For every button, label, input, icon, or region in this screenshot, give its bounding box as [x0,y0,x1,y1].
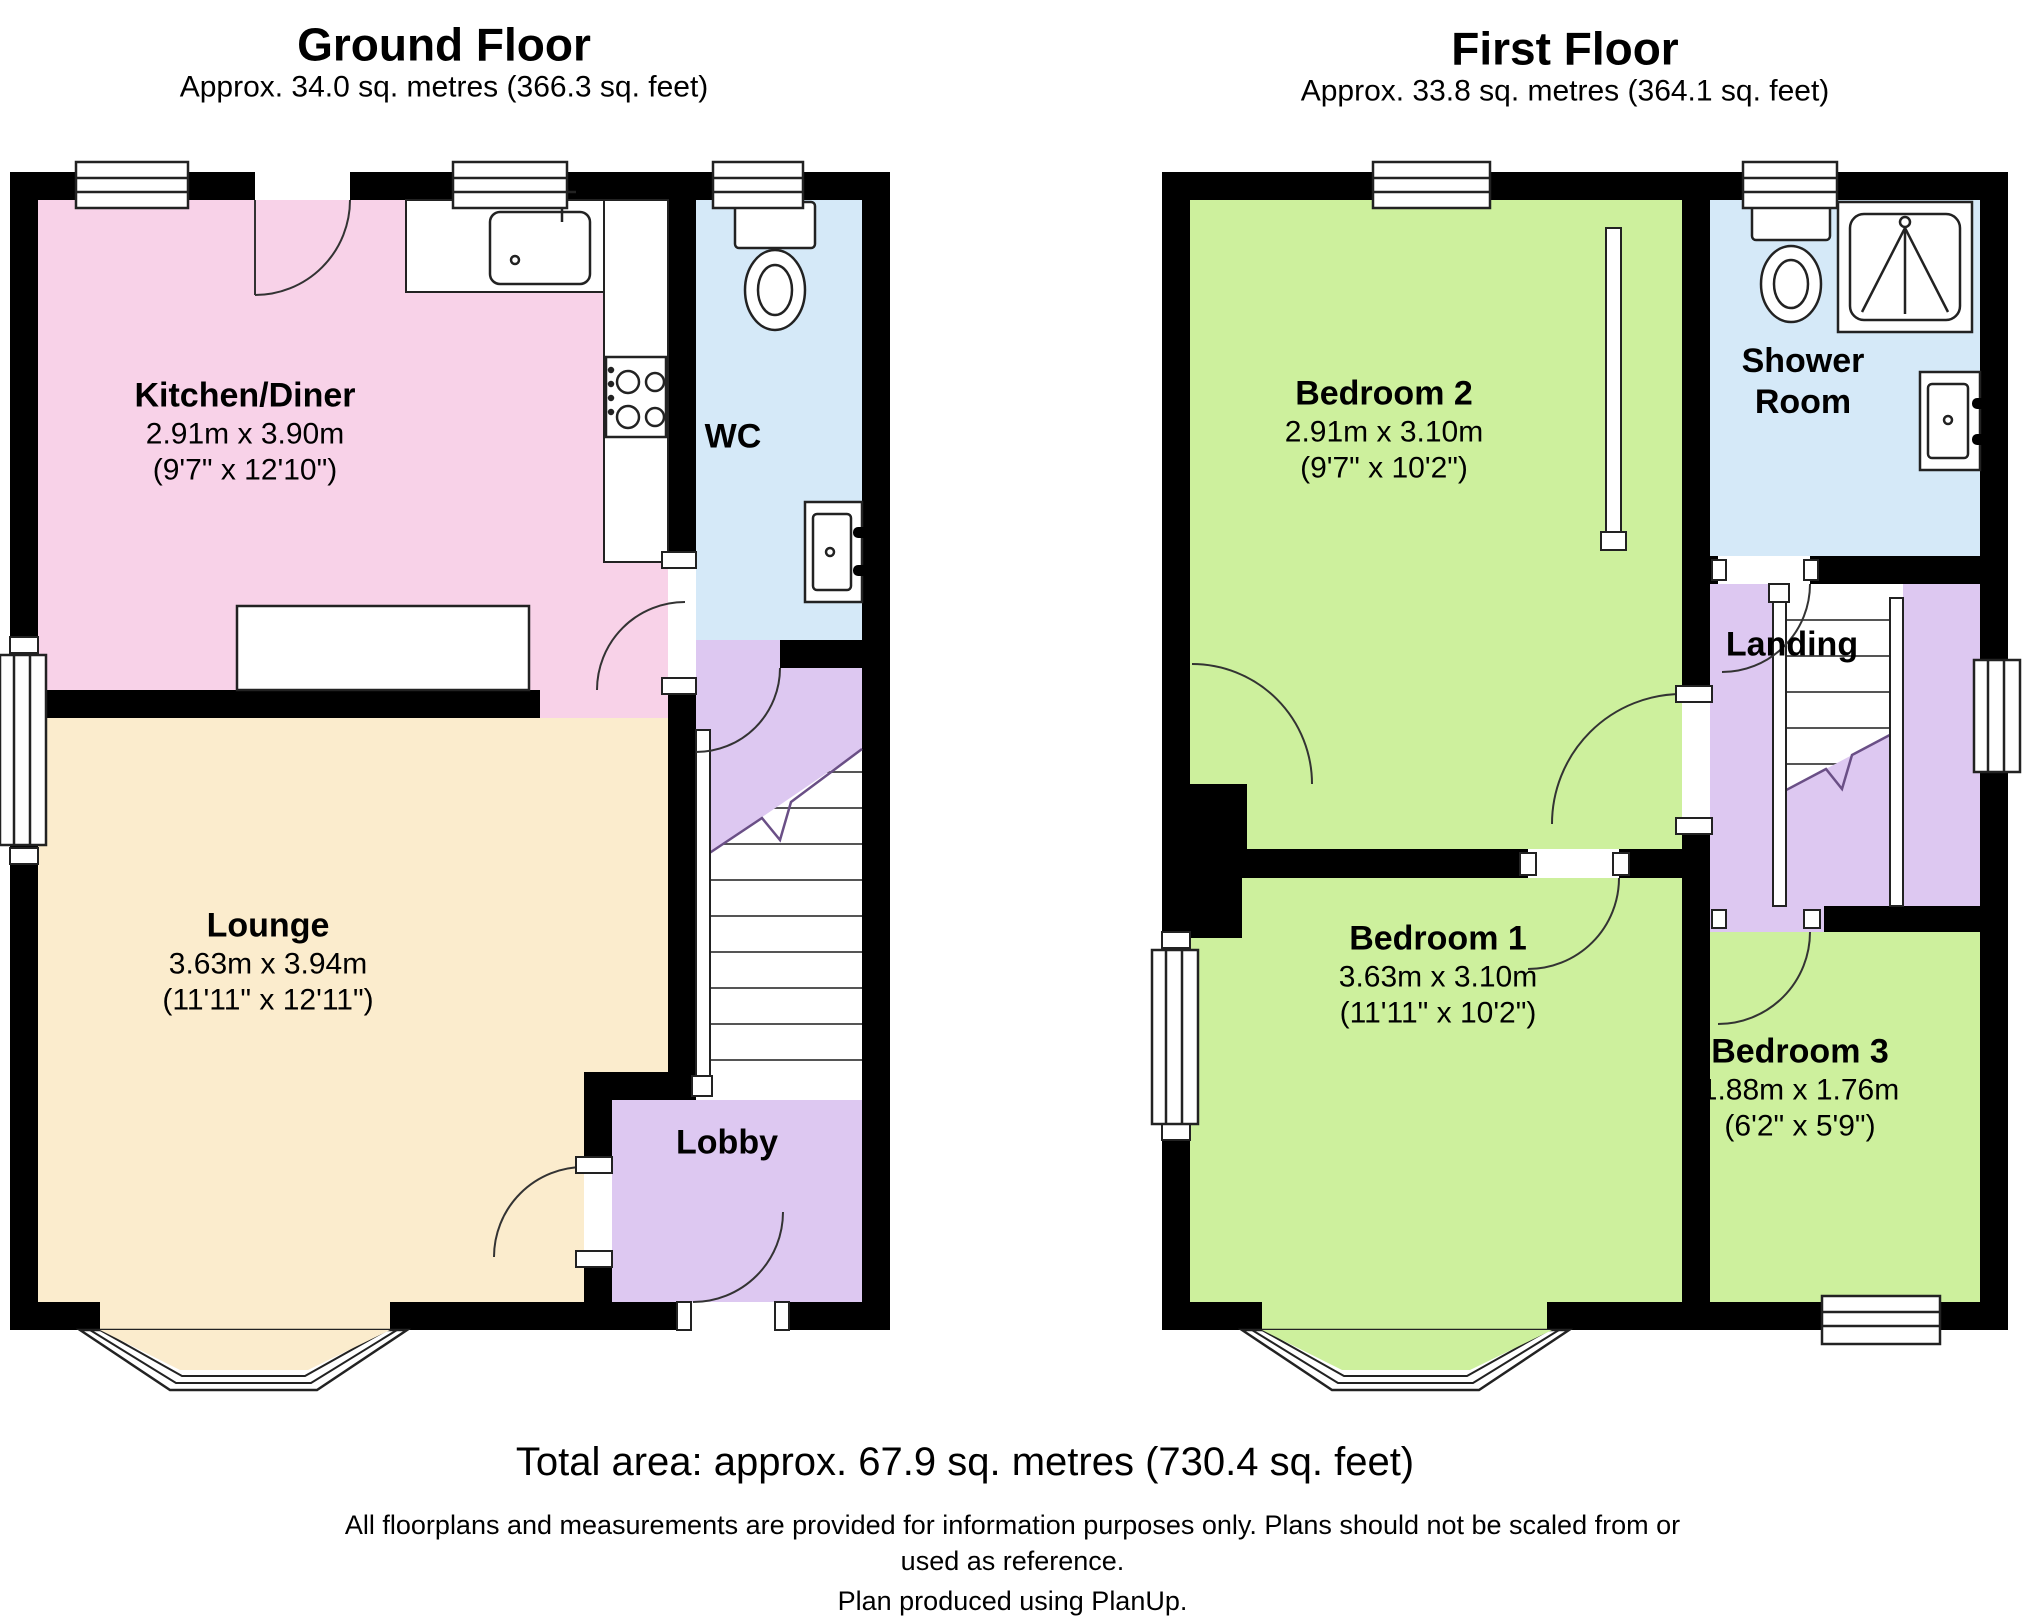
shower-basin-icon [1920,372,1990,470]
hob-icon [606,357,666,437]
ground-floor-plan [0,157,890,1422]
bedroom1-door-opening [1528,849,1619,878]
wc-bottom-wall [780,640,862,668]
back-door-opening [255,172,350,200]
bedroom3-window [1822,1296,1940,1344]
kitchen-window-2 [453,162,567,208]
lounge-bay-window [80,1302,407,1390]
front-door-opening [683,1302,783,1330]
landing-label: Landing [1726,625,1858,666]
disclaimer-line-2: used as reference. [0,1544,2025,1579]
bedroom2-label: Bedroom 2 2.91m x 3.10m (9'7" x 10'2") [1285,374,1483,487]
shower-room-label: Shower Room [1742,341,1865,423]
bedroom1-chimney [1190,878,1242,938]
shower-tray-icon [1838,202,1972,332]
first-floor-plan [1147,157,2025,1422]
bedroom2-door-opening [1682,694,1710,824]
shower-door-opening [1718,556,1810,584]
shower-window [1743,162,1837,208]
lounge-side-window [0,655,46,845]
first-floor-subtitle: Approx. 33.8 sq. metres (364.1 sq. feet) [1301,74,1830,108]
landing-window [1974,660,2020,772]
bedroom3-top-wall [1824,906,1980,932]
bedroom1-side-window [1152,950,1198,1124]
first-floor-title: First Floor [1301,24,1830,75]
wc-label: WC [705,417,762,458]
disclaimer-line-1: All floorplans and measurements are prov… [0,1508,2025,1543]
kitchen-window-1 [76,162,188,208]
kitchen-label: Kitchen/Diner 2.91m x 3.90m (9'7" x 12'1… [134,376,355,489]
bedroom2-chimney [1190,784,1247,849]
total-area-text: Total area: approx. 67.9 sq. metres (730… [0,1440,1930,1485]
first-floor-header: First Floor Approx. 33.8 sq. metres (364… [1301,24,1830,109]
ground-stairs [692,712,862,1100]
bedroom1-bay-window [1242,1302,1569,1390]
lobby-label: Lobby [676,1123,778,1164]
bedroom1-label: Bedroom 1 3.63m x 3.10m (11'11" x 10'2") [1339,919,1537,1032]
lounge-lobby-door-opening [584,1167,612,1257]
lounge-label: Lounge 3.63m x 3.94m (11'11" x 12'11") [162,906,373,1019]
ground-floor-subtitle: Approx. 34.0 sq. metres (366.3 sq. feet) [180,70,709,104]
kitchen-lounge-wall [38,690,540,718]
wc-basin-icon [805,502,871,602]
ground-floor-title: Ground Floor [180,20,709,71]
kitchen-table [237,606,529,690]
bedroom3-label: Bedroom 3 1.88m x 1.76m (6'2" x 5'9") [1701,1032,1899,1145]
kitchen-hall-door-opening [668,562,696,690]
bedroom2-window [1373,162,1490,208]
lobby-top-wall [584,1072,696,1100]
wc-window [713,162,803,208]
disclaimer-line-3: Plan produced using PlanUp. [0,1584,2025,1619]
ground-floor-header: Ground Floor Approx. 34.0 sq. metres (36… [180,20,709,105]
